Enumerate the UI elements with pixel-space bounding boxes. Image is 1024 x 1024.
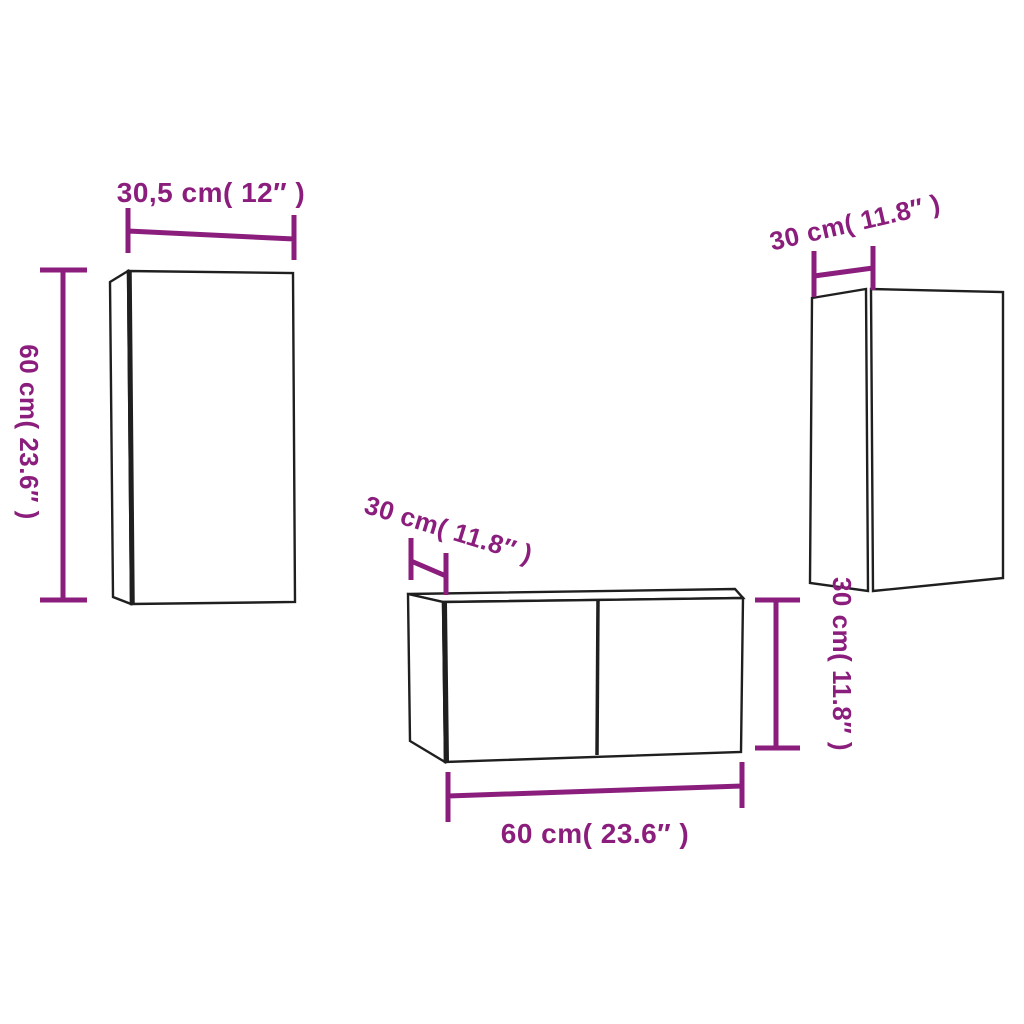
dimension-line: [40, 269, 87, 601]
left-cabinet-height-dimension: 60 cm( 23.6″ ): [14, 269, 87, 601]
center-cabinet-front-face: [443, 598, 743, 762]
center-cabinet-height-dimension: 30 cm( 11.8″ ): [755, 577, 857, 751]
left-cabinet-width-label: 30,5 cm( 12″ ): [117, 177, 306, 208]
center-cabinet-door-divider: [597, 600, 598, 755]
right-cabinet-side-face: [810, 289, 868, 591]
right-cabinet-depth-label: 30 cm( 11.8″ ): [767, 188, 943, 256]
center-cabinet: [408, 589, 743, 762]
dimension-line: [411, 538, 446, 595]
diagram-canvas: 30,5 cm( 12″ ) 60 cm( 23.6″ ) 30 cm( 11.…: [0, 0, 1024, 1024]
center-cabinet-depth-dimension: 30 cm( 11.8″ ): [361, 490, 536, 595]
center-cabinet-height-label: 30 cm( 11.8″ ): [827, 577, 857, 751]
left-cabinet-width-dimension: 30,5 cm( 12″ ): [117, 177, 306, 260]
center-cabinet-depth-label: 30 cm( 11.8″ ): [361, 490, 536, 570]
left-cabinet-front-edge: [130, 272, 133, 603]
left-cabinet: [110, 271, 295, 604]
right-cabinet-depth-dimension: 30 cm( 11.8″ ): [767, 188, 943, 297]
dimension-line: [448, 762, 742, 822]
center-cabinet-front-edge: [445, 603, 447, 761]
dimension-line: [755, 598, 800, 750]
left-cabinet-height-label: 60 cm( 23.6″ ): [14, 344, 44, 520]
center-cabinet-width-dimension: 60 cm( 23.6″ ): [448, 762, 742, 849]
dimension-line: [128, 208, 294, 260]
left-cabinet-front-face: [128, 271, 295, 604]
right-cabinet: [810, 289, 1003, 591]
right-cabinet-front-face: [871, 289, 1003, 591]
center-cabinet-width-label: 60 cm( 23.6″ ): [501, 818, 690, 849]
center-cabinet-side-face: [408, 594, 445, 762]
product-dimension-diagram: 30,5 cm( 12″ ) 60 cm( 23.6″ ) 30 cm( 11.…: [0, 0, 1024, 1024]
